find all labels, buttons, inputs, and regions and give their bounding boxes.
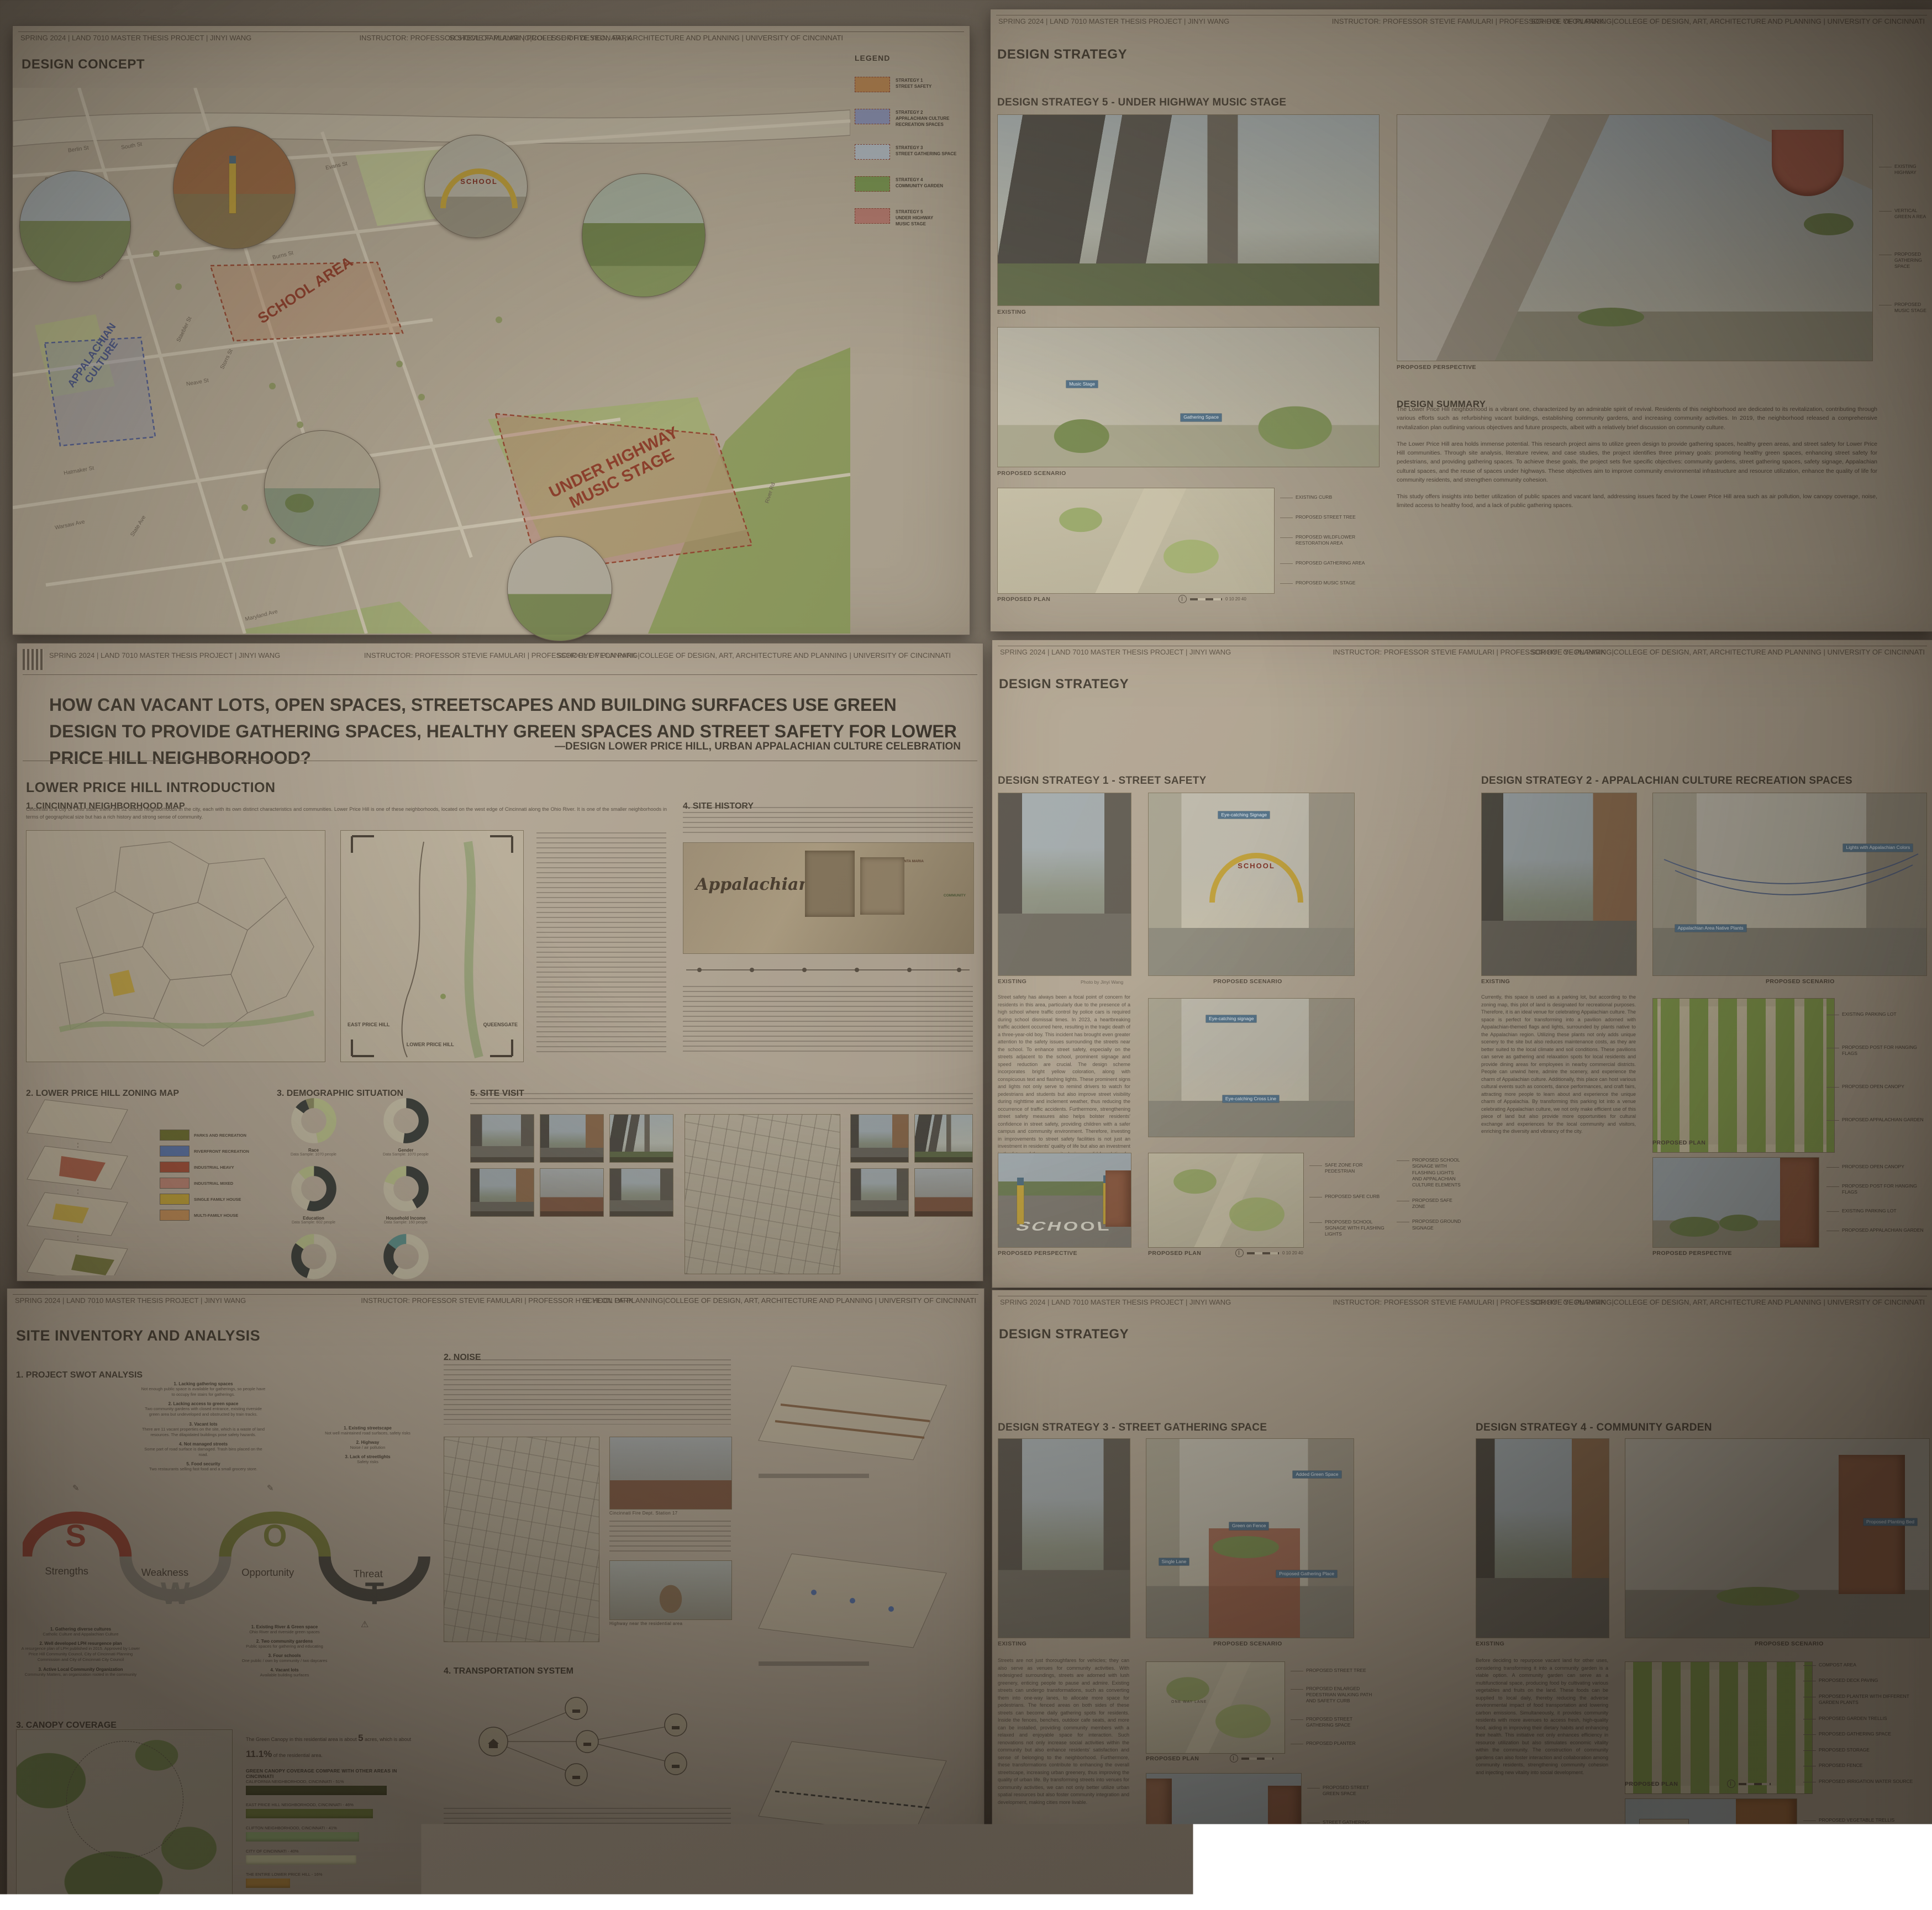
divider [996,15,1927,15]
donut-chart: Household IncomeData Sample: 160 people [369,1165,443,1225]
poster-header: SPRING 2024 | LAND 7010 MASTER THESIS PR… [1000,648,1925,658]
swot-item: 2. HighwayNoise / air pollution [308,1440,427,1450]
strip-photo-image [590,1832,658,1873]
site-photo [914,1114,973,1163]
swot-item-text: Ohio River and riverside green spaces [224,1629,345,1635]
site-photo [850,1114,909,1163]
bar-label: CLIFTON NEIGHBORHOOD, CINCINNATI - 41% [246,1825,412,1830]
zoning-legend: PARKS AND RECREATIONRIVERFRONT RECREATIO… [160,1130,265,1226]
vignette-recreation [582,173,706,297]
callout-label: PROPOSED GROUND SIGNAGE [1397,1218,1463,1231]
plan-callouts: PROPOSED STREET TREEPROPOSED ENLARGED PE… [1291,1661,1373,1753]
perspective-callouts: PROPOSED OPEN CANOPYPROPOSED POST FOR HA… [1826,1157,1926,1240]
plan-callouts: SAFE ZONE FOR PEDESTRIANPROPOSED SAFE CU… [1309,1153,1392,1247]
divider [13,1294,978,1295]
divider [998,646,1927,646]
site-photo [540,1114,604,1163]
lightbulb-icon: ✎ [72,1483,80,1493]
header-school: SCHOOL OF PLANNING|COLLEGE OF DESIGN, AR… [582,1296,976,1305]
scenario-render-crossing: Eye-catching signage Eye-catching Cross … [1148,998,1355,1137]
caption-proposed-scenario: PROPOSED SCENARIO [1213,978,1282,985]
page-title: DESIGN STRATEGY [999,677,1129,692]
strategy4-heading: DESIGN STRATEGY 4 - COMMUNITY GARDEN [1476,1422,1712,1434]
legend-swatch [855,208,890,224]
vignette-planters [507,536,612,641]
bar-label: THE ENTIRE LOWER PRICE HILL - 16% [246,1872,412,1877]
divider [23,674,977,675]
summary-paragraph: The Lower Price Hill area holds immense … [1397,440,1877,484]
site-photo [609,1168,673,1217]
transportation-text-illegible [444,1808,731,1824]
legend-label: STRATEGY 4 COMMUNITY GARDEN [896,176,943,189]
donut-caption: Household Income [369,1216,443,1221]
site-history-text-illegible [683,807,973,836]
zoning-label: INDUSTRIAL MIXED [194,1181,233,1186]
svg-text:Opportunity: Opportunity [241,1566,294,1578]
bar [246,1855,356,1865]
proposed-scenario-render: Music Stage Gathering Space [997,327,1380,467]
legend-title: LEGEND [855,54,963,62]
callout-label: PROPOSED OPEN CANOPY [1826,1084,1926,1090]
caption-fire-station: Cincinnati Fire Dept. Station 17 [609,1511,678,1516]
canopy-percent-value: 11.1% [246,1749,272,1759]
map-legend: LEGEND STRATEGY 1 STREET SAFETYSTRATEGY … [855,54,963,244]
swot-item-text: Two restaurants selling fast food and a … [140,1466,267,1472]
existing-photo [1481,793,1637,976]
scale-bar [1727,1780,1771,1788]
caption-proposed-plan: PROPOSED PLAN [1148,1250,1201,1257]
poster-strategy-3-4: SPRING 2024 | LAND 7010 MASTER THESIS PR… [992,1290,1932,1910]
swot-item: 3. Four schoolsOne public / own by commu… [224,1653,345,1664]
site-visit-photo-grid-right [850,1114,973,1217]
callout-label: PROPOSED FENCE [1803,1763,1928,1769]
callout-label: PROPOSED OPEN CANOPY [1826,1164,1926,1170]
swot-item-title: 2. Two community gardens [224,1639,345,1644]
scale-bar [1230,1754,1273,1763]
north-arrow-icon [1727,1780,1735,1788]
scale-segments [1241,1758,1273,1760]
noise-map [444,1437,599,1642]
strategy3-heading: DESIGN STRATEGY 3 - STREET GATHERING SPA… [998,1422,1267,1434]
strategy2-heading: DESIGN STRATEGY 2 - APPALACHIAN CULTURE … [1481,775,1852,787]
svg-text:T: T [365,1576,384,1611]
road-marking-school: SCHOOL [1012,1220,1112,1234]
strip-photo-caption: Train Tracks [664,1875,731,1880]
proposed-plan [1652,998,1835,1153]
poster-header: SPRING 2024 | LAND 7010 MASTER THESIS PR… [49,651,975,661]
svg-text:Strengths: Strengths [45,1565,88,1576]
callout-label: PROPOSED WILDFLOWER RESTORATION AREA [1280,534,1380,546]
donut-caption: Education [277,1216,350,1221]
legend-item: STRATEGY 4 COMMUNITY GARDEN [855,176,963,192]
inset-label-lower-price-hill: LOWER PRICE HILL [407,1042,454,1047]
poster-header: SPRING 2024 | LAND 7010 MASTER THESIS PR… [998,17,1925,27]
caption-existing: EXISTING [997,309,1026,315]
vignette-arch: SCHOOL [424,135,528,238]
threat-items: 1. Existing streetscapeNot well maintain… [308,1426,427,1469]
pencil-icon: ✎ [267,1483,274,1493]
proposed-perspective-render [1146,1773,1302,1897]
weakness-items: 1. Lacking gathering spacesNot enough pu… [140,1381,267,1476]
swot-item-title: 2. Highway [308,1440,427,1445]
swot-item-title: 1. Existing River & Green space [224,1624,345,1629]
inset-label-east-price-hill: EAST PRICE HILL [348,1022,390,1027]
swot-item-title: 1. Lacking gathering spaces [140,1381,267,1386]
callout-chip: Proposed Planting Bed [1863,1518,1917,1526]
swot-item-text: One public / own by community / two dayc… [224,1658,345,1664]
callout-label: PROPOSED SCHOOL SIGNAGE WITH FLASHING LI… [1309,1219,1392,1237]
swot-item-text: Noise / air pollution [308,1445,427,1450]
perspective-callouts: PROPOSED VEGETABLE TRELLISPROPOSED PLANT… [1803,1804,1928,1870]
callout-label: PROPOSED PLANTER WITH DIFFERENT GARDEN P… [1803,1693,1928,1706]
existing-photo [1476,1438,1609,1638]
callout-chip: Eye-catching Cross Line [1223,1095,1279,1102]
plan-callouts: EXISTING CURBPROPOSED STREET TREEPROPOSE… [1280,488,1380,593]
header-school: SCHOOL OF PLANNING|COLLEGE OF DESIGN, AR… [1531,648,1925,656]
callout-label: EXISTING PARKING LOT [1826,1208,1926,1214]
callout-label: EXISTING HIGHWAY [1879,163,1930,176]
zoning-swatch [160,1178,189,1189]
zoning-axon-stack [23,1095,147,1275]
caption-existing: EXISTING [998,1640,1026,1647]
zoning-legend-item: PARKS AND RECREATION [160,1130,265,1141]
callout-label: STREET GATHERING SPACES WITH DIFFERENT S… [1307,1819,1373,1838]
legend-label: STRATEGY 2 APPALACHIAN CULTURE RECREATIO… [896,109,949,128]
north-arrow-icon [1230,1754,1238,1763]
swot-item-title: 3. Active Local Community Organization [17,1667,144,1672]
zoning-swatch [160,1162,189,1173]
bar-label: EAST PRICE HILL NEIGHBORHOOD, CINCINNATI… [246,1802,412,1807]
noise-photo-highway [609,1560,732,1620]
donut-chart [277,1233,350,1284]
bar-chart-row: CITY OF CINCINNATI - 40% [246,1849,412,1865]
demographic-donuts: RaceData Sample: 1070 peopleGenderData S… [277,1098,443,1284]
caption-proposed-perspective: PROPOSED PERSPECTIVE [1146,1898,1225,1904]
site-photo [470,1114,534,1163]
qr-code [23,649,44,670]
swot-item: 3. Active Local Community OrganizationCo… [17,1667,144,1677]
swot-item-title: 4. Not managed streets [140,1442,267,1447]
proposed-perspective-render [1625,1798,1797,1898]
site-history-collage: Appalachian SANTA MARIA COMMUNITY [683,842,974,954]
plan-lane-text: ONE WAY LANE [1171,1700,1207,1704]
swot-item: 4. Not managed streetsSome part of road … [140,1442,267,1458]
canopy-bar-chart: CALIFORNIA NEIGHBORHOOD, CINCINNATI - 51… [246,1779,412,1895]
poster-site-inventory: SPRING 2024 | LAND 7010 MASTER THESIS PR… [7,1288,985,1910]
callout-label: PROPOSED STREET GATHERING SPACE [1291,1716,1373,1728]
caption-proposed-perspective: PROPOSED PERSPECTIVE [1397,364,1476,371]
swot-item: 1. Existing streetscapeNot well maintain… [308,1426,427,1436]
poster-header: SPRING 2024 | LAND 7010 MASTER THESIS PR… [20,34,962,44]
donut-sample: Data Sample: 602 people [277,1221,350,1225]
plan-callouts: EXISTING PARKING LOTPROPOSED POST FOR HA… [1826,998,1926,1136]
header-course: SPRING 2024 | LAND 7010 MASTER THESIS PR… [15,1296,246,1305]
zoning-label: SINGLE FAMILY HOUSE [194,1197,241,1202]
donut-chart: RaceData Sample: 1070 people [277,1098,350,1157]
callout-chip: Added Green Space [1293,1471,1341,1478]
legend-item: STRATEGY 1 STREET SAFETY [855,77,963,92]
strategy2-body: Currently, this space is used as a parki… [1481,994,1636,1136]
strip-photo-image [444,1832,512,1873]
side-paragraph-illegible [536,832,666,1053]
existing-photo [998,793,1131,976]
caption-proposed-scenario: PROPOSED SCENARIO [997,470,1066,477]
scenario-render-arch: Eye-catching Signage SCHOOL [1148,793,1355,976]
zoning-label: INDUSTRIAL HEAVY [194,1165,234,1170]
callout-label: PROPOSED SCHOOL SIGNAGE WITH FLASHING LI… [1397,1157,1463,1188]
svg-text:O: O [263,1518,287,1553]
swot-item-text: Catholic Culture and Appalachian Culture [17,1632,144,1637]
strip-photo-caption: Road with Pavement [517,1875,585,1880]
callout-chip: Single Lane [1159,1558,1189,1565]
swot-item-text: Public spaces for gathering and educatin… [224,1644,345,1649]
callout-label: PROPOSED STREET GREEN SPACE [1307,1785,1373,1797]
vignette-playground [19,171,131,282]
strip-photo: Highway [444,1832,512,1880]
callout-chip: Appalachian Area Native Plants [1675,925,1746,932]
swot-item-text: Safety risks [308,1459,427,1465]
header-course: SPRING 2024 | LAND 7010 MASTER THESIS PR… [998,17,1229,25]
strip-photo-image [517,1832,585,1873]
poster-header: SPRING 2024 | LAND 7010 MASTER THESIS PR… [1000,1298,1925,1308]
callout-label: PROPOSED STREET TREE [1291,1668,1373,1674]
site-visit-map [685,1114,840,1274]
section-1-text: Cincinnati is a city of Ohio state, ther… [26,806,667,821]
proposed-plan [997,488,1275,594]
warning-icon: ⚠ [361,1619,368,1630]
caption-proposed-plan: PROPOSED PLAN [1146,1755,1199,1762]
header-school: SCHOOL OF PLANNING|COLLEGE OF DESIGN, AR… [1531,17,1925,25]
header-course: SPRING 2024 | LAND 7010 MASTER THESIS PR… [1000,1298,1231,1306]
bar-chart-row: EAST PRICE HILL NEIGHBORHOOD, CINCINNATI… [246,1802,412,1818]
site-photo [609,1114,673,1163]
page-title: DESIGN STRATEGY [997,47,1127,62]
zoning-swatch [160,1210,189,1221]
swot-item-title: 4. Vacant lots [224,1668,345,1672]
inset-label-queensgate: QUEENSGATE [483,1022,518,1027]
callout-label: PROPOSED STREET TREE [1280,514,1380,520]
north-arrow-icon [1235,1249,1244,1257]
swot-item-text: Not enough public space is available for… [140,1386,267,1397]
collage-word: Appalachian [696,875,810,894]
caption-proposed-plan: PROPOSED PLAN [1652,1139,1705,1146]
callout-label: PROPOSED ENLARGED PEDESTRIAN WALKING PAT… [1291,1686,1373,1704]
legend-label: STRATEGY 5 UNDER HIGHWAY MUSIC STAGE [896,208,933,227]
swot-item: 1. Gathering diverse culturesCatholic Cu… [17,1627,144,1637]
bar [246,1809,373,1818]
existing-photo [997,114,1380,306]
callout-label: PROPOSED SAFE CURB [1309,1194,1392,1200]
callout-label: PROPOSED PLANTER [1291,1740,1373,1747]
scale-ticks: 0 10 20 40 [1225,597,1246,602]
strategy4-body: Before deciding to repurpose vacant land… [1476,1657,1608,1776]
swot-item: 4. Vacant lotsAvailable building surface… [224,1668,345,1678]
proposed-plan-garden [1625,1661,1813,1794]
swot-item: 3. Vacant lotsThere are 11 vacant proper… [140,1422,267,1438]
zoning-label: RIVERFRONT RECREATION [194,1149,249,1154]
caption-proposed-scenario: PROPOSED SCENARIO [1766,978,1835,985]
canopy-bar-chart-title: GREEN CANOPY COVERAGE COMPARE WITH OTHER… [246,1768,412,1779]
zoning-label: MULTI-FAMILY HOUSE [194,1213,238,1218]
site-photo [914,1168,973,1217]
header-school: SCHOOL OF PLANNING|COLLEGE OF DESIGN, AR… [449,34,843,42]
caption-proposed-perspective: PROPOSED PERSPECTIVE [1625,1899,1704,1906]
callout-label: PROPOSED PLANTER [1307,1860,1373,1866]
svg-text:W: W [161,1576,191,1611]
donut-chart [369,1233,443,1284]
legend-label: STRATEGY 1 STREET SAFETY [896,77,931,90]
donut-caption: Gender [369,1148,443,1153]
caption-existing: EXISTING [1481,978,1510,985]
proposed-perspective-render [1652,1157,1819,1248]
swot-item: 5. Food securityTwo restaurants selling … [140,1461,267,1472]
strip-photo: Pedestrian [590,1832,658,1880]
swot-item: 3. Lack of streetlightsSafety risks [308,1454,427,1465]
section-title-introduction: LOWER PRICE HILL INTRODUCTION [26,780,276,796]
callout-label: PROPOSED DECK PAVING [1803,1677,1928,1684]
zoning-swatch [160,1146,189,1157]
callout-label: COMPOST AREA [1803,1662,1928,1668]
scenario-render-appalachian: Lights with Appalachian Colors Appalachi… [1652,793,1927,976]
donut-sample: Data Sample: 1070 people [369,1153,443,1157]
bar-chart-row: CLIFTON NEIGHBORHOOD, CINCINNATI - 41% [246,1825,412,1842]
site-photo [540,1168,604,1217]
vignette-school-render [173,126,296,249]
header-school: SCHOOL OF PLANNING|COLLEGE OF DESIGN, AR… [1531,1298,1925,1306]
legend-swatch [855,176,890,192]
swot-item: 2. Two community gardensPublic spaces fo… [224,1639,345,1649]
scale-segments [1190,598,1222,600]
callout-label: PROPOSED STORAGE [1803,1747,1928,1753]
bar [246,1786,387,1795]
poster-strategy-5: SPRING 2024 | LAND 7010 MASTER THESIS PR… [990,9,1932,632]
opportunity-items: 1. Existing River & Green spaceOhio Rive… [224,1624,345,1682]
scale-bar: 0 10 20 40 [1178,595,1246,603]
strip-photo-caption: Pedestrian [590,1875,658,1880]
header-course: SPRING 2024 | LAND 7010 MASTER THESIS PR… [49,651,280,659]
swot-item-title: 3. Four schools [224,1653,345,1658]
swot-item: 1. Existing River & Green spaceOhio Rive… [224,1624,345,1635]
donut-chart: GenderData Sample: 1070 people [369,1098,443,1157]
canopy-stat: The Green Canopy in this residential are… [246,1730,412,1763]
callout-label: PROPOSED GATHERING SPACE [1879,251,1930,270]
header-school: SCHOOL OF PLANNING|COLLEGE OF DESIGN, AR… [557,651,951,659]
swot-item-title: 5. Food security [140,1461,267,1466]
caption-proposed-scenario: PROPOSED SCENARIO [1755,1640,1824,1647]
strip-photo-image [664,1832,731,1873]
legend-items: STRATEGY 1 STREET SAFETYSTRATEGY 2 APPAL… [855,77,963,228]
site-photo [850,1168,909,1217]
donut-sample: Data Sample: 160 people [369,1221,443,1225]
legend-item: STRATEGY 2 APPALACHIAN CULTURE RECREATIO… [855,109,963,128]
strategy1-body: Street safety has always been a focal po… [998,994,1130,1165]
collage-logo-community: COMMUNITY [944,894,966,898]
zoning-swatch [160,1130,189,1141]
callout-chip: Gathering Space [1181,414,1222,421]
swot-item-title: 2. Well developed LPH resurgence plan [17,1641,144,1646]
svg-text:Threat: Threat [354,1568,383,1579]
zoning-legend-item: INDUSTRIAL HEAVY [160,1162,265,1173]
photo-credit: Photo by Jinyi Wang [1081,979,1123,985]
canopy-acres-value: 5 [358,1733,363,1743]
divider [18,31,964,32]
strategy1-heading: DESIGN STRATEGY 1 - STREET SAFETY [998,775,1207,787]
north-arrow-icon [1178,595,1187,603]
swot-item-title: 1. Gathering diverse cultures [17,1627,144,1632]
swot-item-title: 1. Existing streetscape [308,1426,427,1431]
callout-label: PROPOSED POST FOR HANGING FLAGS [1826,1044,1926,1057]
poster-header: SPRING 2024 | LAND 7010 MASTER THESIS PR… [15,1296,976,1306]
swot-item-title: 3. Vacant lots [140,1422,267,1427]
svg-text:S: S [65,1518,86,1553]
swot-wave-diagram: S W O T Strengths Weakness Opportunity T… [23,1499,443,1614]
header-course: SPRING 2024 | LAND 7010 MASTER THESIS PR… [20,34,251,42]
callout-label: PROPOSED GATHERING SPACE [1803,1731,1928,1737]
callout-label: EXISTING PARKING LOT [1826,1011,1926,1017]
bar-chart-row: CALIFORNIA NEIGHBORHOOD, CINCINNATI - 51… [246,1779,412,1795]
callout-label: VERTICAL GREEN A REA [1879,208,1930,220]
swot-item: 2. Well developed LPH resurgence planA r… [17,1641,144,1663]
proposed-plan: ONE WAY LANE [1146,1661,1285,1754]
caption-proposed-scenario: PROPOSED SCENARIO [1213,1640,1282,1647]
donut-caption: Race [277,1148,350,1153]
design-summary-text: The Lower Price Hill neighborhood is a v… [1397,405,1877,518]
noise-callout-illegible [609,1521,731,1554]
swot-item-title: 2. Lacking access to green space [140,1401,267,1406]
proposed-perspective-render: SCHOOL [998,1153,1131,1248]
callout-label: PROPOSED APPALACHIAN GARDEN [1826,1227,1926,1233]
callout-chip: Lights with Appalachian Colors [1843,844,1913,851]
header-course: SPRING 2024 | LAND 7010 MASTER THESIS PR… [1000,648,1231,656]
legend-swatch [855,77,890,92]
scale-segments [1739,1783,1771,1785]
swot-heading: 1. PROJECT SWOT ANALYSIS [16,1370,143,1380]
swot-item: 2. Lacking access to green spaceTwo comm… [140,1401,267,1417]
scale-segments [1247,1252,1279,1254]
question-attribution: —DESIGN LOWER PRICE HILL, URBAN APPALACH… [555,741,961,753]
legend-item: STRATEGY 3 STREET GATHERING SPACE [855,144,963,160]
donut-sample: Data Sample: 1070 people [277,1153,350,1157]
caption-existing: EXISTING [998,978,1026,985]
callout-label: PROPOSED PLANTER [1803,1850,1928,1856]
callout-label: PROPOSED GATHERING AREA [1280,560,1380,566]
strategy3-body: Streets are not just thoroughfares for v… [998,1657,1129,1806]
callout-label: PROPOSED GARDEN TRELLIS [1803,1716,1928,1722]
swot-item-title: 3. Lack of streetlights [308,1454,427,1459]
callout-label: PROPOSED SAFE ZONE [1397,1197,1463,1210]
strengths-items: 1. Gathering diverse culturesCatholic Cu… [17,1627,144,1681]
caption-proposed-plan: PROPOSED PLAN [997,596,1050,603]
site-photo [470,1168,534,1217]
proposed-plan [1148,1153,1304,1248]
zoning-label: PARKS AND RECREATION [194,1133,246,1138]
zoning-swatch [160,1194,189,1205]
swot-item-text: There are 11 vacant properties on the si… [140,1427,267,1438]
bar [246,1879,290,1888]
vignette-pavilion [264,430,380,546]
donut-chart: EducationData Sample: 602 people [277,1165,350,1225]
strip-photo: Road with Pavement [517,1832,585,1880]
callout-label: PROPOSED MUSIC STAGE [1879,302,1930,314]
legend-label: STRATEGY 3 STREET GATHERING SPACE [896,144,956,157]
page-title: DESIGN CONCEPT [22,57,145,72]
scenario-render: Added Green Space Green on Fence Single … [1146,1438,1354,1638]
bar [246,1832,359,1842]
callout-label: PROPOSED IRRIGATION WATER SOURCE [1803,1779,1928,1785]
scale-bar: 0 10 20 40 [1235,1249,1303,1257]
page-title: SITE INVENTORY AND ANALYSIS [16,1327,260,1344]
research-question: HOW CAN VACANT LOTS, OPEN SPACES, STREET… [49,692,961,771]
